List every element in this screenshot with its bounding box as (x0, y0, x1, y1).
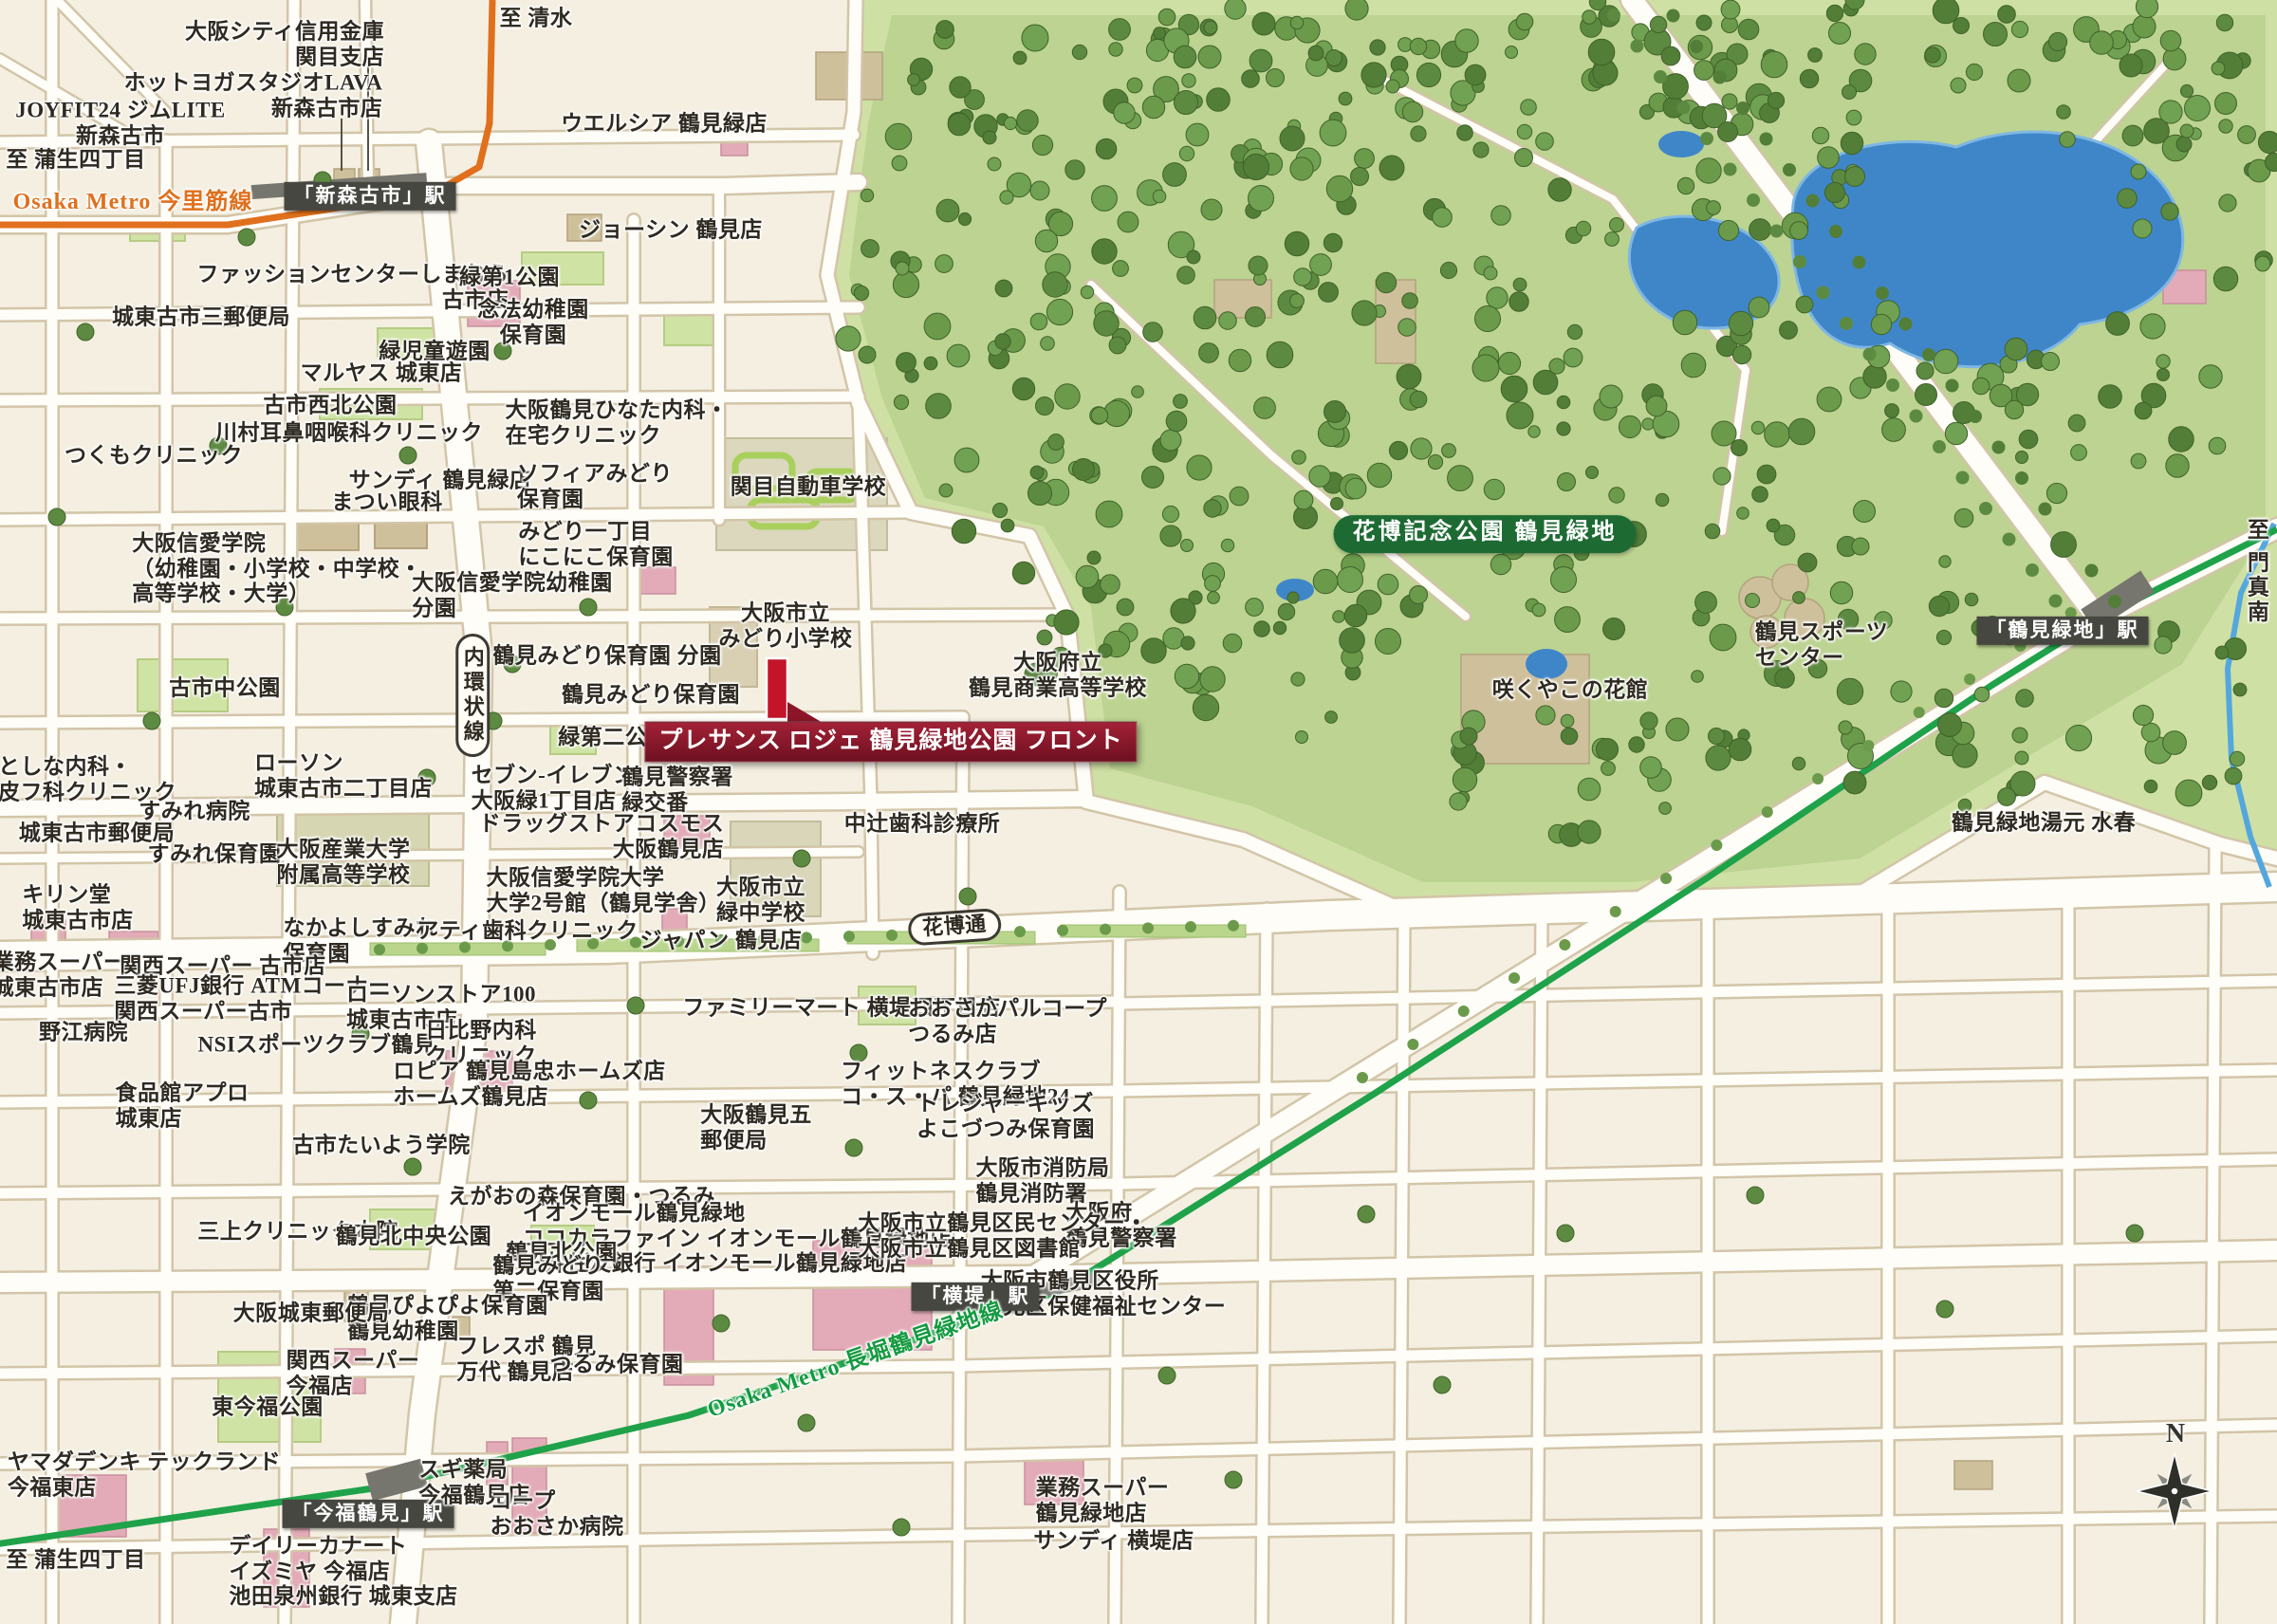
label-osaka-palcoop: おおさかパルコープ つるみ店 (908, 996, 1107, 1046)
label-tsurumi-fire-station: 大阪市消防局 鶴見消防署 (976, 1155, 1110, 1206)
label-yumoto-suisyun: 鶴見緑地湯元 水春 (1952, 811, 2136, 837)
label-toshina-clinic: としな内科・ 皮フ科クリニック (0, 754, 176, 804)
label-uchikanjosen: 内環状線 (455, 634, 490, 757)
label-imazatosuji-line: Osaka Metro 今里筋線 (13, 190, 253, 216)
label-kawamura-ent-clinic: 川村耳鼻咽喉科クリニック (215, 421, 483, 447)
label-joyfit24: JOYFIT24 ジムLITE 新森古市 (15, 98, 226, 148)
label-hinata-clinic: 大阪鶴見ひなた内科・ 在宅クリニック (506, 397, 729, 448)
label-gyomu-super-tsurumiryokuchi: 業務スーパー 鶴見緑地店 (1036, 1475, 1170, 1525)
map: 大阪シティ信用金庫 関目支店ホットヨガスタジオLAVA 新森古市店JOYFIT2… (0, 0, 2277, 1624)
label-tsurumi-sports-center: 鶴見スポーツ センター (1755, 619, 1889, 670)
label-higashi-imafuku-park: 東今福公園 (212, 1395, 324, 1421)
label-kirindo-joto-furuichi: キリン堂 城東古市店 (22, 882, 134, 932)
label-nsi-sports-club: NSIスポーツクラブ鶴見 (198, 1033, 436, 1059)
label-japan-tsurumi: ジャパン 鶴見店 (640, 929, 803, 954)
label-seven-eleven-midori1: セブン-イレブン 大阪緑1丁目店 (472, 763, 636, 813)
label-maruyasu-joto: マルヤス 城東店 (301, 361, 463, 387)
label-nakatsuji-dental: 中辻歯科診療所 (844, 812, 1001, 838)
label-drug-cosmos: ドラッグストアコスモス 大阪鶴見店 (479, 811, 725, 861)
label-osaka-tsurumi5-post: 大阪鶴見五 郵便局 (700, 1102, 812, 1153)
label-kumin-center-library: 大阪市立鶴見区民センター・ 大阪市立鶴見区図書館 (858, 1210, 1148, 1261)
label-appro-joto: 食品館アプロ 城東店 (116, 1080, 250, 1131)
label-to-gamo4-top: 至 蒲生四丁目 (6, 148, 145, 174)
label-furuichi-seihoku-park: 古市西北公園 (264, 394, 398, 419)
label-yamada-denki: ヤマダデンキ テックランド 今福東店 (8, 1449, 281, 1500)
label-midori-junior-high: 大阪市立 緑中学校 (716, 875, 805, 925)
label-sandai-fuzoku-hs: 大阪産業大学 附属高等学校 (277, 837, 411, 887)
map-labels-layer: 大阪シティ信用金庫 関目支店ホットヨガスタジオLAVA 新森古市店JOYFIT2… (0, 0, 2277, 1624)
label-lopia-shimachu: ロピア 鶴見島忠ホームズ店 ホームズ鶴見店 (393, 1059, 666, 1109)
label-furuichi-naka-park: 古市中公園 (169, 676, 281, 702)
label-sophia-midori-hoikuen: ソフィアみどり 保育園 (517, 461, 673, 511)
label-osaka-joto-post: 大阪城東郵便局 (233, 1301, 390, 1327)
label-sakuya-konohana-kan: 咲くやこの花館 (1492, 678, 1649, 704)
label-shinai-kindergarten-bunen: 大阪信愛学院幼稚園 分園 (412, 570, 613, 620)
label-daily-qanat-izumiya: デイリーカナート イズミヤ 今福店 池田泉州銀行 城東支店 (229, 1534, 457, 1610)
label-sandi-yokotei: サンディ 横堤店 (1033, 1529, 1194, 1555)
compass-north-label: N (2161, 1419, 2190, 1449)
label-coop-osaka-hospital: コープ おおさか病院 (491, 1488, 624, 1539)
label-sekime-driving-school: 関目自動車学校 (731, 475, 887, 501)
label-nenpo-kindergarten: 念法幼稚園 保育園 (477, 297, 589, 347)
label-gyomu-super-joto-furuichi: 業務スーパー 城東古市店 (0, 950, 125, 1000)
station-tsurumi-ryokuchi: 「鶴見緑地」駅 (1977, 617, 2149, 645)
label-welcia-tsurumimidori: ウエルシア 鶴見緑店 (561, 112, 768, 138)
label-tsurumi-midori-hoikuen-bunen: 鶴見みどり保育園 分園 (492, 644, 721, 670)
label-joto-furuichi-3-post: 城東古市三郵便局 (112, 305, 290, 331)
label-tsukumo-clinic: つくもクリニック (65, 444, 243, 470)
label-tsurumi-kitachuo-park: 鶴見北中央公園 (336, 1225, 492, 1250)
label-midori-no1-park: 緑第1公園 (459, 266, 560, 291)
label-midori1-nikoniko-hoikuen: みどり一丁目 にこにこ保育園 (518, 519, 674, 569)
label-atti-dental-clinic: アティ歯科クリニック (417, 919, 639, 945)
label-osaka-shinai-gakuin: 大阪信愛学院 （幼稚園・小学校・中学校・ 高等学校・大学） (132, 531, 422, 607)
label-shinai-univ-bldg2: 大阪信愛学院大学 大学2号館（鶴見学舎） (487, 865, 721, 915)
label-nagahori-tsurumiryokuchi-line: Osaka Metro 長堀鶴見緑地線 (704, 1298, 1007, 1424)
property-banner: プレサンス ロジェ 鶴見緑地公園 フロント (644, 722, 1137, 763)
label-joshin-tsurumi: ジョーシン 鶴見店 (579, 218, 763, 244)
station-shinmori-furuichi: 「新森古市」駅 (285, 182, 456, 211)
label-hanahaku-memorial-park: 花博記念公園 鶴見緑地 (1334, 515, 1637, 553)
label-tsurumi-police-midori-koban: 鶴見警察署 緑交番 (621, 765, 733, 815)
label-noe-hospital: 野江病院 (39, 1021, 128, 1046)
label-kansai-super-imafuku: 関西スーパー 今福店 (287, 1348, 420, 1398)
label-to-shimizu: 至 清水 (500, 7, 573, 32)
label-hanahaku-dori: 花博通 (907, 908, 1002, 946)
label-tsurumi-commercial-hs: 大阪府立 鶴見商業高等学校 (969, 650, 1147, 700)
label-osaka-city-shinkin-sekime: 大阪シティ信用金庫 関目支店 (185, 19, 384, 69)
label-to-gamo4-bottom: 至 蒲生四丁目 (6, 1548, 145, 1574)
label-to-kadoma-minami: 至 門真南 (2243, 518, 2268, 625)
label-lawson-joto-furuichi2: ローソン 城東古市二丁目店 (254, 750, 433, 801)
label-tsurumi-hoikuen: つるみ保育園 (550, 1353, 684, 1378)
label-tsurumi-midori-hoikuen: 鶴見みどり保育園 (562, 683, 740, 709)
label-furuichi-taiyo-gakuin: 古市たいよう学院 (292, 1134, 471, 1159)
label-treasure-kids: トレジャーキッズ よこづつみ保育園 (916, 1091, 1095, 1141)
label-midori-elementary: 大阪市立 みどり小学校 (719, 600, 853, 651)
label-matsui-ganka: まつい眼科 (331, 490, 443, 516)
label-sumire-hoikuen: すみれ保育園 (148, 842, 282, 868)
